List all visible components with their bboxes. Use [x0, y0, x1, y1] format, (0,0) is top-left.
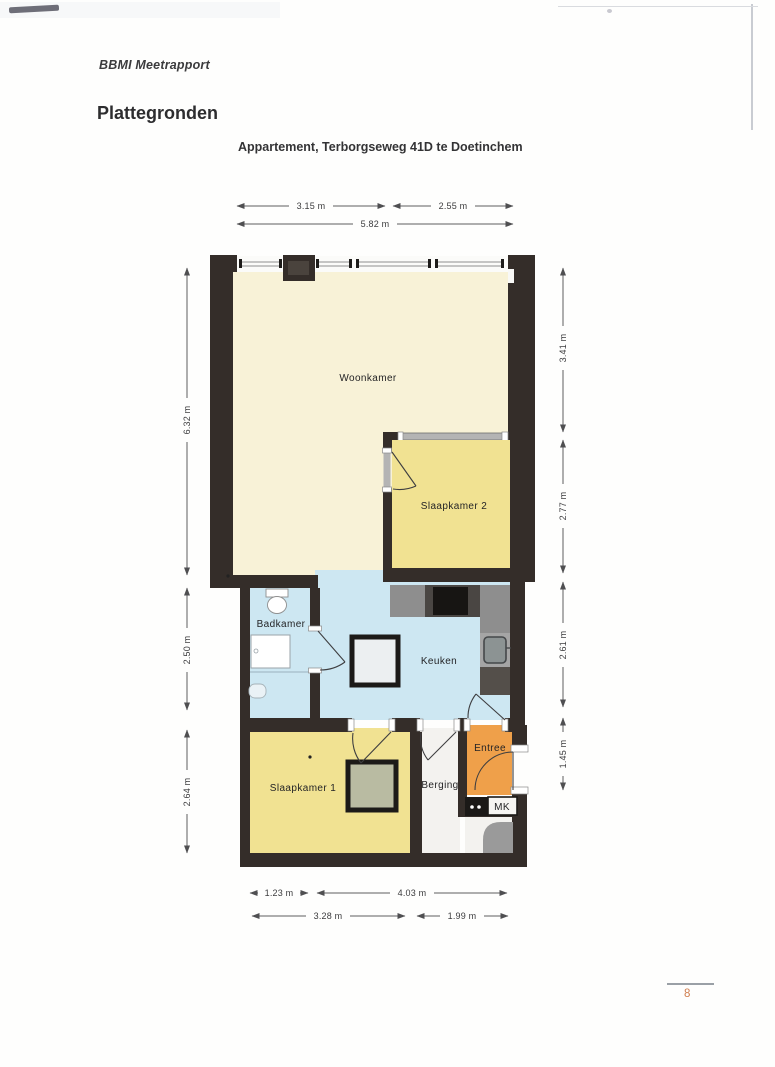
stove-icon	[433, 587, 468, 615]
svg-text:6.32 m: 6.32 m	[182, 406, 192, 435]
svg-text:3.15 m: 3.15 m	[297, 201, 326, 211]
label-woonkamer: Woonkamer	[339, 373, 397, 384]
column-shaft-keuken	[352, 637, 398, 685]
dim-bottom-3: 3.28 m	[252, 911, 405, 921]
counter-corner	[480, 585, 510, 635]
counter-lower	[480, 667, 510, 695]
label-slaapkamer2: Slaapkamer 2	[421, 501, 488, 512]
svg-text:1.45 m: 1.45 m	[558, 740, 568, 769]
dim-left-2: 2.50 m	[182, 588, 192, 710]
washbasin	[249, 684, 266, 698]
dim-top-1: 3.15 m	[237, 201, 385, 211]
dim-right-2: 2.77 m	[558, 440, 568, 573]
svg-text:2.55 m: 2.55 m	[439, 201, 468, 211]
toilet-tank	[266, 589, 288, 597]
toilet-bowl	[268, 597, 287, 614]
room-hall-passage	[315, 570, 385, 584]
svg-text:2.61 m: 2.61 m	[558, 631, 568, 660]
stair-blob	[483, 822, 513, 853]
fuse-box-icon	[465, 797, 488, 816]
label-mk: MK	[494, 802, 510, 813]
counter-top	[390, 585, 425, 617]
sk2-glass-partition	[400, 433, 503, 440]
room-entree	[465, 725, 512, 795]
floor-plan: Woonkamer Slaapkamer 2 Badkamer Keuken S…	[0, 0, 775, 1067]
label-keuken: Keuken	[421, 656, 457, 667]
svg-text:5.82 m: 5.82 m	[361, 219, 390, 229]
window-band-top	[233, 256, 508, 272]
dim-top-total: 5.82 m	[237, 219, 513, 229]
dim-bottom-2: 4.03 m	[317, 888, 507, 898]
dim-bottom-4: 1.99 m	[417, 911, 508, 921]
dim-right-3: 2.61 m	[558, 582, 568, 707]
svg-text:2.77 m: 2.77 m	[558, 492, 568, 521]
footer-rule	[667, 983, 714, 985]
dim-left-1: 6.32 m	[182, 268, 192, 575]
svg-text:2.50 m: 2.50 m	[182, 636, 192, 665]
svg-text:3.41 m: 3.41 m	[558, 334, 568, 363]
room-berging	[420, 728, 460, 855]
shaft-slaapkamer1	[348, 762, 396, 810]
scanned-report-page: BBMI Meetrapport Plattegronden Apparteme…	[0, 0, 775, 1067]
label-badkamer: Badkamer	[257, 619, 306, 630]
svg-text:3.28 m: 3.28 m	[314, 911, 343, 921]
label-entree: Entree	[474, 743, 506, 754]
dim-right-4: 1.45 m	[558, 718, 568, 790]
label-berging: Berging	[421, 780, 458, 791]
dim-bottom-1: 1.23 m	[250, 888, 308, 898]
page-number: 8	[684, 988, 690, 1000]
svg-text:1.99 m: 1.99 m	[448, 911, 477, 921]
bathtub	[251, 635, 290, 668]
label-slaapkamer1: Slaapkamer 1	[270, 783, 337, 794]
svg-text:4.03 m: 4.03 m	[398, 888, 427, 898]
dim-right-1: 3.41 m	[558, 268, 568, 432]
svg-text:2.64 m: 2.64 m	[182, 778, 192, 807]
dim-left-3: 2.64 m	[182, 730, 192, 853]
svg-text:1.23 m: 1.23 m	[265, 888, 294, 898]
dim-top-2: 2.55 m	[393, 201, 513, 211]
sink-basin-icon	[484, 637, 506, 663]
